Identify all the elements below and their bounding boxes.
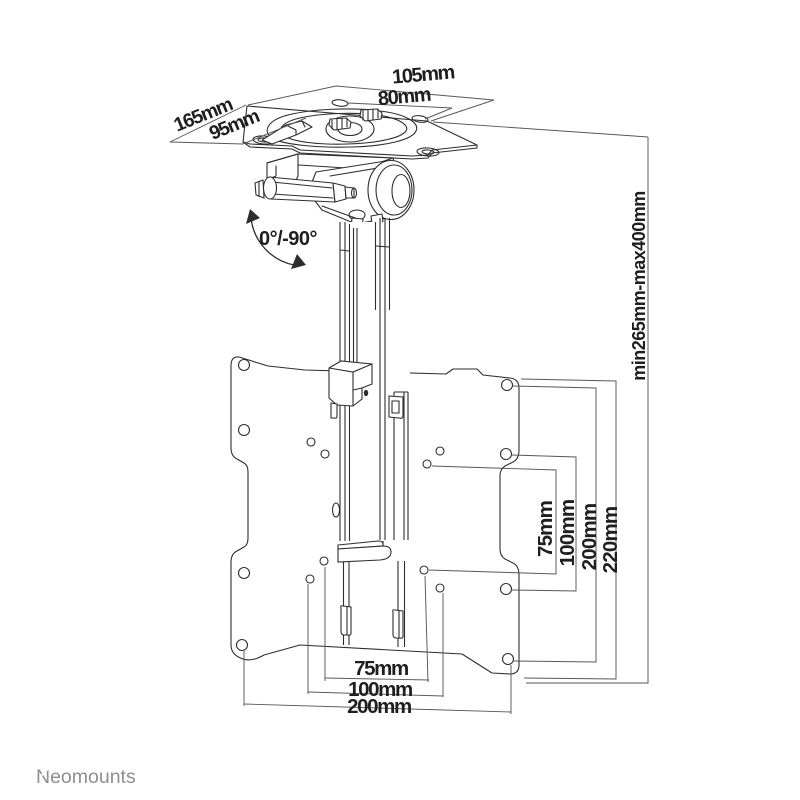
svg-text:0°/-90°: 0°/-90° bbox=[259, 228, 318, 250]
svg-text:75mm: 75mm bbox=[534, 501, 557, 557]
svg-text:75mm: 75mm bbox=[354, 657, 408, 680]
svg-text:200mm: 200mm bbox=[347, 695, 411, 718]
svg-text:100mm: 100mm bbox=[556, 500, 579, 567]
svg-text:220mm: 220mm bbox=[599, 507, 622, 574]
svg-text:80mm: 80mm bbox=[377, 84, 432, 111]
svg-text:min265mm-max400mm: min265mm-max400mm bbox=[629, 191, 649, 381]
svg-text:200mm: 200mm bbox=[578, 504, 601, 571]
svg-text:Neomounts: Neomounts bbox=[36, 766, 136, 788]
